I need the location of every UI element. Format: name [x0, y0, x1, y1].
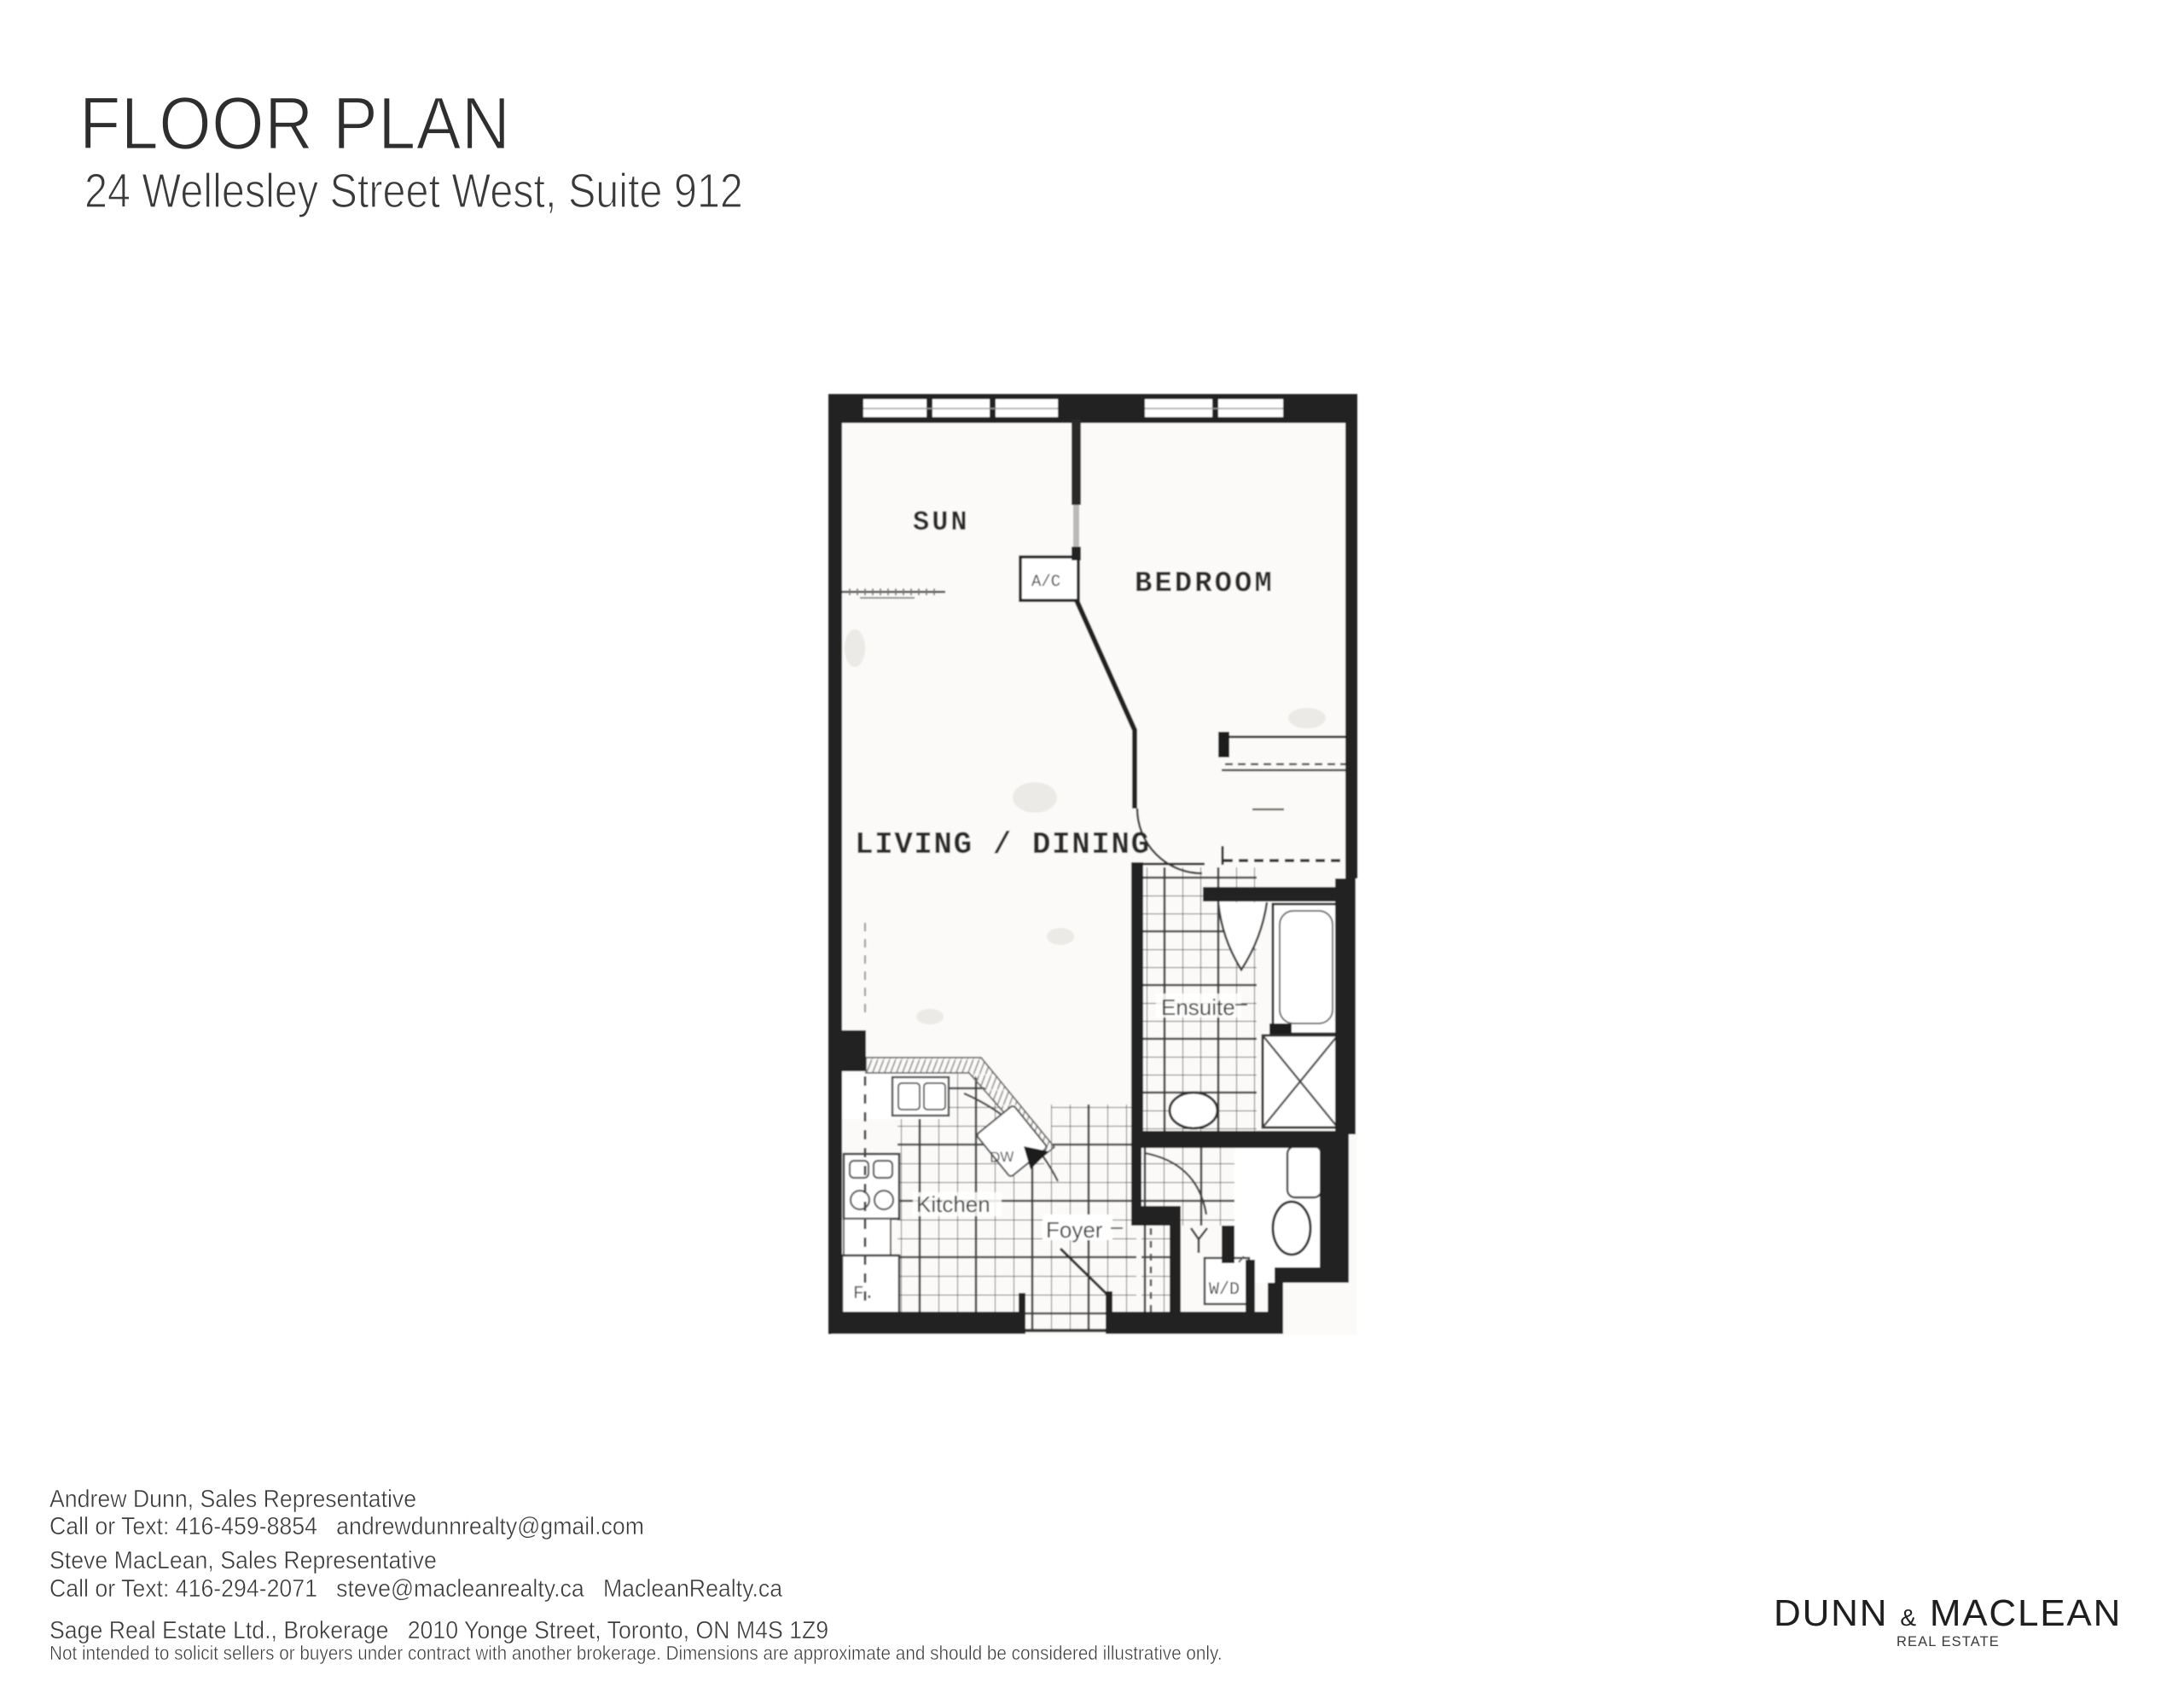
svg-text:Kitchen: Kitchen [916, 1191, 990, 1217]
svg-text:SUN: SUN [913, 507, 970, 538]
svg-text:Foyer: Foyer [1046, 1217, 1103, 1243]
svg-text:BEDROOM: BEDROOM [1135, 568, 1275, 600]
svg-text:A/C: A/C [1031, 572, 1060, 591]
svg-text:W/D: W/D [1209, 1280, 1240, 1300]
svg-text:LIVING / DINING: LIVING / DINING [855, 827, 1151, 862]
svg-text:DW: DW [990, 1149, 1014, 1166]
svg-text:Ensuite: Ensuite [1161, 994, 1235, 1020]
